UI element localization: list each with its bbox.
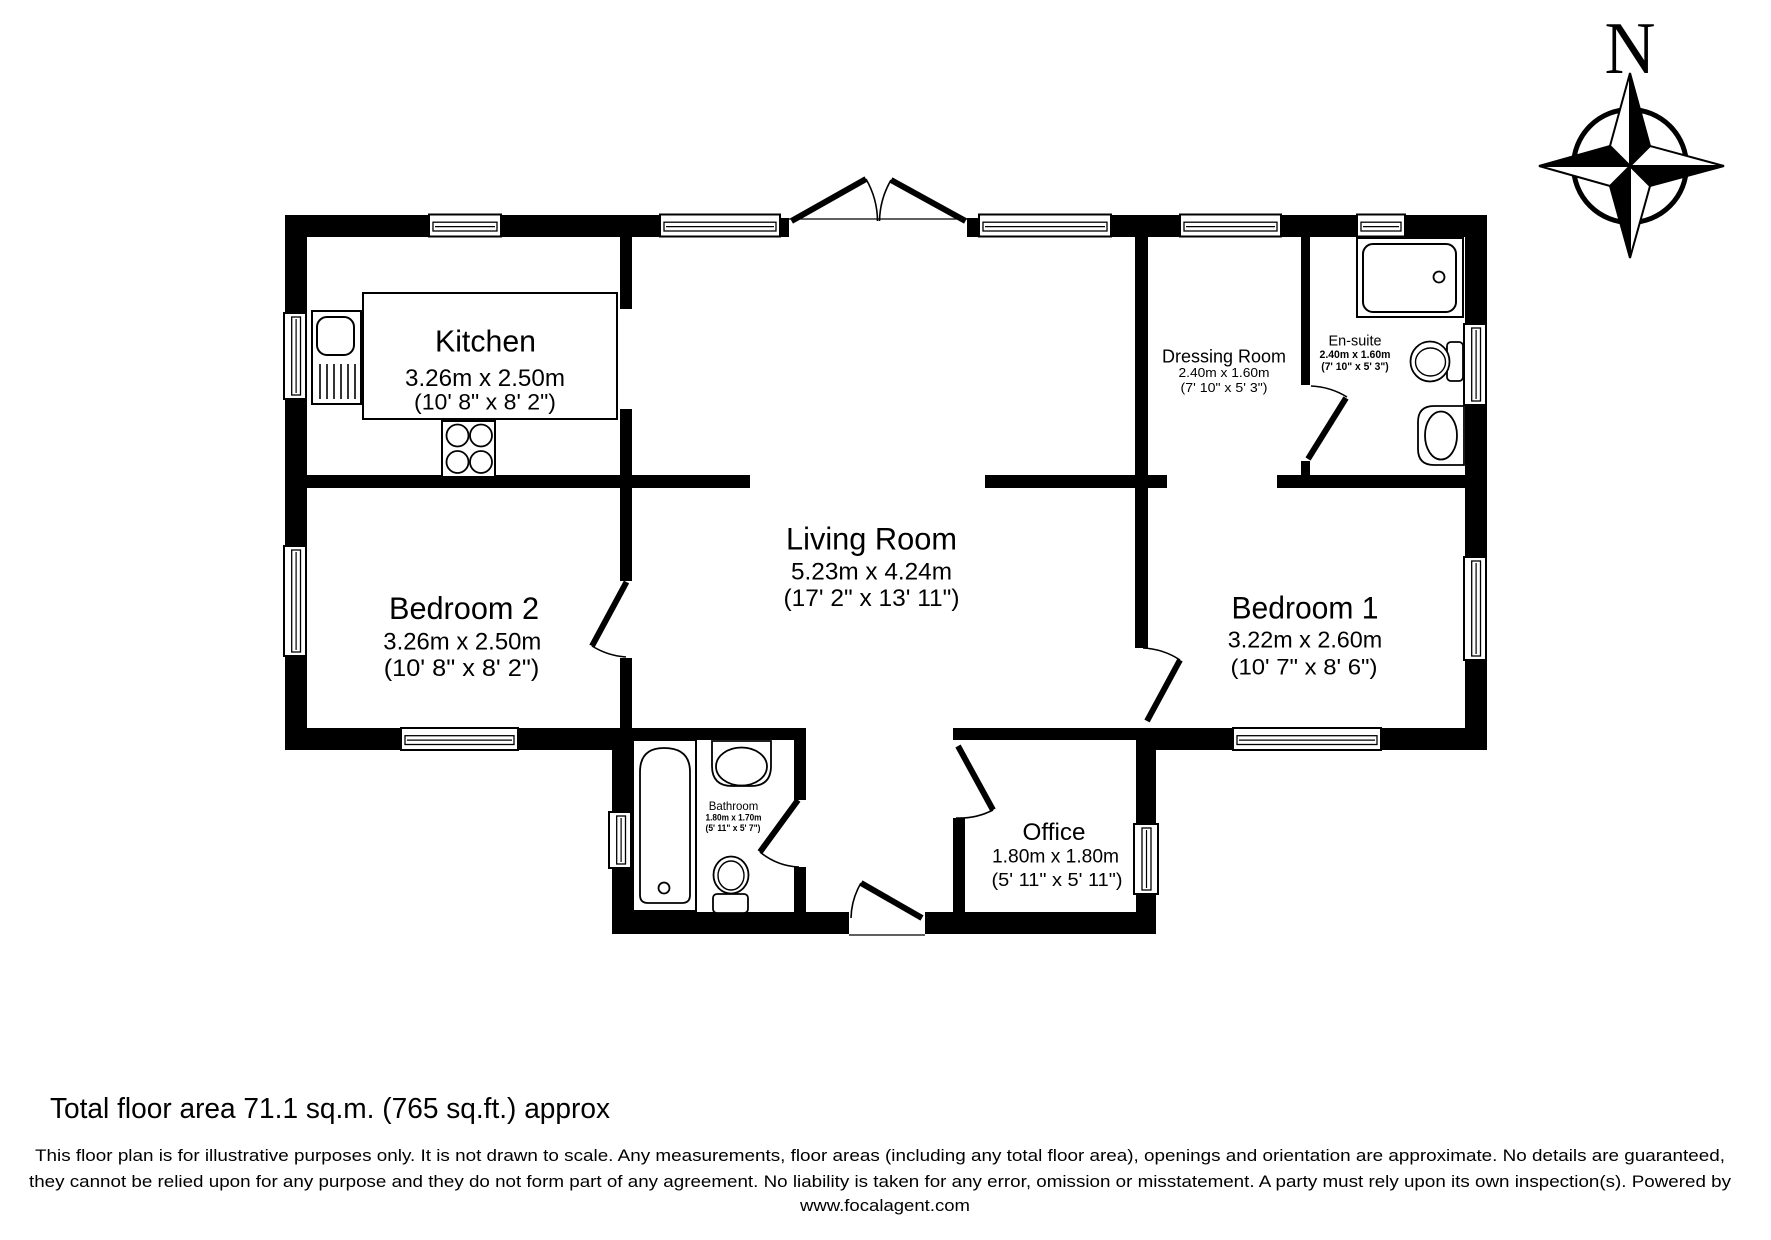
- svg-text:they cannot be relied upon for: they cannot be relied upon for any purpo…: [29, 1172, 1732, 1191]
- svg-text:3.26m x 2.50m: 3.26m x 2.50m: [405, 365, 565, 392]
- svg-text:3.26m x 2.50m: 3.26m x 2.50m: [383, 629, 541, 656]
- svg-text:(7' 10" x 5' 3"): (7' 10" x 5' 3"): [1321, 361, 1389, 373]
- svg-text:www.focalagent.com: www.focalagent.com: [799, 1196, 970, 1215]
- svg-text:Living Room: Living Room: [786, 521, 957, 557]
- svg-text:(5' 11" x 5' 7"): (5' 11" x 5' 7"): [706, 823, 761, 834]
- svg-text:Dressing Room: Dressing Room: [1162, 346, 1286, 367]
- svg-text:Bedroom 1: Bedroom 1: [1232, 590, 1379, 626]
- svg-text:(5' 11" x 5' 11"): (5' 11" x 5' 11"): [992, 869, 1123, 890]
- svg-text:(10' 8" x 8' 2"): (10' 8" x 8' 2"): [414, 390, 556, 415]
- svg-text:(17' 2" x 13' 11"): (17' 2" x 13' 11"): [784, 585, 960, 612]
- svg-text:Office: Office: [1023, 819, 1086, 846]
- svg-text:This floor plan is for illustr: This floor plan is for illustrative purp…: [35, 1146, 1725, 1165]
- svg-text:Bathroom: Bathroom: [709, 799, 759, 813]
- svg-text:(10' 7" x 8' 6"): (10' 7" x 8' 6"): [1231, 655, 1378, 680]
- svg-text:3.22m x 2.60m: 3.22m x 2.60m: [1228, 627, 1383, 653]
- svg-text:2.40m x 1.60m: 2.40m x 1.60m: [1179, 365, 1270, 380]
- svg-text:(7' 10" x 5' 3"): (7' 10" x 5' 3"): [1181, 380, 1268, 395]
- svg-text:(10' 8" x 8' 2"): (10' 8" x 8' 2"): [384, 655, 540, 682]
- svg-text:2.40m x 1.60m: 2.40m x 1.60m: [1320, 349, 1391, 361]
- svg-text:5.23m x 4.24m: 5.23m x 4.24m: [791, 559, 952, 586]
- svg-text:Total floor area 71.1 sq.m. (7: Total floor area 71.1 sq.m. (765 sq.ft.)…: [50, 1093, 610, 1125]
- svg-text:1.80m x 1.80m: 1.80m x 1.80m: [992, 847, 1119, 868]
- svg-text:1.80m x 1.70m: 1.80m x 1.70m: [706, 813, 762, 824]
- svg-text:En-suite: En-suite: [1329, 333, 1382, 350]
- svg-text:Kitchen: Kitchen: [435, 324, 536, 359]
- svg-text:Bedroom 2: Bedroom 2: [389, 590, 539, 626]
